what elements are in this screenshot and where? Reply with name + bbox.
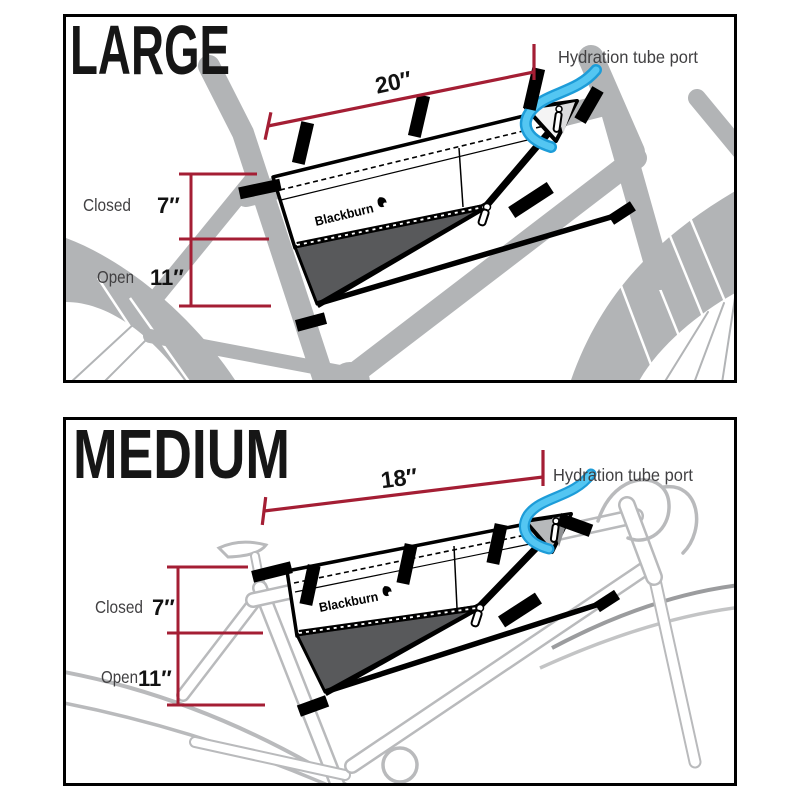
panel-large-illustration: Blackburn <box>63 14 737 383</box>
hydration-port-label: Hydration tube port <box>558 47 698 67</box>
width-value: 18″ <box>379 463 419 493</box>
open-label: Open <box>97 267 134 287</box>
open-value: 11″ <box>150 265 184 290</box>
open-label: Open <box>101 667 138 687</box>
closed-value: 7″ <box>152 595 175 620</box>
panel-medium-illustration: Blackburn <box>63 417 737 786</box>
hydration-port-label: Hydration tube port <box>553 465 693 485</box>
closed-label: Closed <box>83 195 131 215</box>
closed-value: 7″ <box>157 193 180 218</box>
panel-title: LARGE <box>70 14 230 89</box>
sizing-infographic: Blackburn <box>0 0 800 800</box>
panel-title: MEDIUM <box>73 417 290 493</box>
crankset <box>383 748 417 782</box>
open-value: 11″ <box>138 666 172 691</box>
panel-large: Blackburn <box>63 14 737 383</box>
panel-medium: Blackburn <box>63 417 737 786</box>
closed-label: Closed <box>95 597 143 617</box>
